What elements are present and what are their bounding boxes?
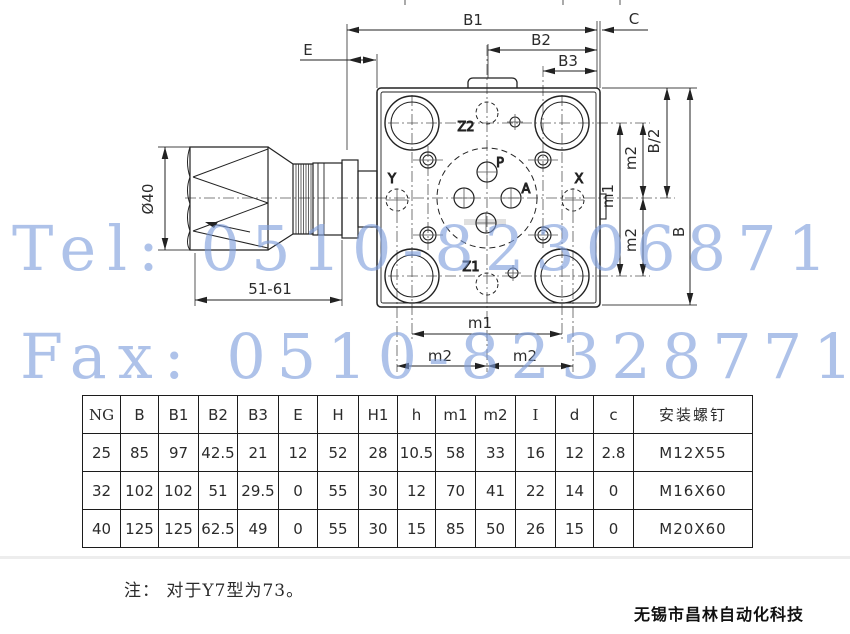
cell: 125: [159, 510, 199, 548]
cell: 85: [121, 434, 159, 472]
dim-label-m2-bottom-left: m2: [428, 347, 452, 365]
valve-technical-drawing: B1 C B2 B3 E Ø40 51-61 m1 m2 m2 m1 m2 B/…: [0, 0, 850, 392]
cell: 52: [318, 434, 359, 472]
cell: 21: [238, 434, 279, 472]
cell: 85: [436, 510, 476, 548]
col-header-c: c: [594, 396, 634, 434]
col-header-m1: m1: [436, 396, 476, 434]
cell-ng: 25: [83, 434, 121, 472]
col-header-b: B: [121, 396, 159, 434]
cell: 102: [121, 472, 159, 510]
cell-screw: M20X60: [634, 510, 753, 548]
col-header-b2: B2: [199, 396, 238, 434]
table-row-ng40: 40 125 125 62.5 49 0 55 30 15 85 50 26 1…: [83, 510, 753, 548]
col-header-b3: B3: [238, 396, 279, 434]
cell: 10.5: [398, 434, 436, 472]
cell: 0: [279, 510, 318, 548]
cell: 0: [279, 472, 318, 510]
col-header-mounting-screw: 安装螺钉: [634, 396, 753, 434]
port-label-x: X: [575, 172, 584, 187]
cell: 12: [398, 472, 436, 510]
cell: 55: [318, 510, 359, 548]
cell: 12: [279, 434, 318, 472]
table-row-ng32: 32 102 102 51 29.5 0 55 30 12 70 41 22 1…: [83, 472, 753, 510]
port-label-z1: Z1: [462, 260, 479, 275]
cell: 33: [476, 434, 516, 472]
cell: 41: [476, 472, 516, 510]
dim-label-m2-bottom-right: m2: [513, 347, 537, 365]
cell: 42.5: [199, 434, 238, 472]
adjustment-knob: [188, 147, 378, 250]
dim-label-b3: B3: [558, 52, 578, 70]
cell: 26: [516, 510, 556, 548]
cell-screw: M12X55: [634, 434, 753, 472]
cell: 97: [159, 434, 199, 472]
dim-label-m1-right: m1: [599, 184, 617, 208]
col-header-ng: NG: [83, 396, 121, 434]
cell: 0: [594, 472, 634, 510]
cell: 28: [359, 434, 398, 472]
cell: 12: [556, 434, 594, 472]
cell: 30: [359, 510, 398, 548]
cell: 0: [594, 510, 634, 548]
dim-label-51-61: 51-61: [248, 280, 292, 298]
port-label-y: Y: [387, 172, 396, 187]
cell: 49: [238, 510, 279, 548]
port-label-z2: Z2: [457, 120, 474, 135]
cell: 62.5: [199, 510, 238, 548]
dim-label-b: B: [670, 227, 688, 237]
dim-label-m2-right-lower: m2: [622, 228, 640, 252]
cell: 14: [556, 472, 594, 510]
dim-label-c: C: [629, 10, 639, 28]
col-header-h1: H1: [359, 396, 398, 434]
col-header-m2: m2: [476, 396, 516, 434]
cell: 30: [359, 472, 398, 510]
table-row-ng25: 25 85 97 42.5 21 12 52 28 10.5 58 33 16 …: [83, 434, 753, 472]
extension-lines: [158, 0, 697, 306]
ports: Z2 Z1 P A Y X: [386, 102, 584, 295]
cell: 51: [199, 472, 238, 510]
col-header-h-cap: H: [318, 396, 359, 434]
dim-label-e: E: [303, 41, 312, 59]
dim-label-b2: B2: [531, 31, 551, 49]
cell: 15: [398, 510, 436, 548]
cell: 70: [436, 472, 476, 510]
note-text: 注： 对于Y7型为73。: [124, 576, 304, 601]
cell: 125: [121, 510, 159, 548]
datasheet-page: B1 C B2 B3 E Ø40 51-61 m1 m2 m2 m1 m2 B/…: [0, 0, 850, 634]
cell: 55: [318, 472, 359, 510]
cell-ng: 32: [83, 472, 121, 510]
cell-ng: 40: [83, 510, 121, 548]
dim-label-m1-bottom: m1: [468, 314, 492, 332]
valve-body: [377, 78, 606, 307]
cell: 50: [476, 510, 516, 548]
port-label-a: A: [522, 182, 531, 197]
scan-streak: [0, 556, 850, 559]
dimension-labels: B1 C B2 B3 E Ø40 51-61 m1 m2 m2 m1 m2 B/…: [139, 10, 688, 365]
cell-screw: M16X60: [634, 472, 753, 510]
company-name: 无锡市昌林自动化科技: [634, 601, 804, 625]
cell: 15: [556, 510, 594, 548]
cell: 16: [516, 434, 556, 472]
dim-label-b-half: B/2: [645, 129, 663, 154]
cell: 29.5: [238, 472, 279, 510]
col-header-h: h: [398, 396, 436, 434]
dimension-table: NG B B1 B2 B3 E H H1 h m1 m2 I d c 安装螺钉 …: [82, 395, 753, 548]
dim-label-m2-right-upper: m2: [622, 146, 640, 170]
col-header-i: I: [516, 396, 556, 434]
dim-label-b1: B1: [463, 11, 483, 29]
cell: 22: [516, 472, 556, 510]
dim-label-dia40: Ø40: [139, 184, 157, 215]
col-header-d: d: [556, 396, 594, 434]
table-header-row: NG B B1 B2 B3 E H H1 h m1 m2 I d c 安装螺钉: [83, 396, 753, 434]
cell: 2.8: [594, 434, 634, 472]
cell: 102: [159, 472, 199, 510]
top-tab: [468, 78, 517, 88]
col-header-e: E: [279, 396, 318, 434]
col-header-b1: B1: [159, 396, 199, 434]
port-label-p: P: [496, 156, 504, 171]
cell: 58: [436, 434, 476, 472]
thread-hatching: [296, 164, 311, 234]
